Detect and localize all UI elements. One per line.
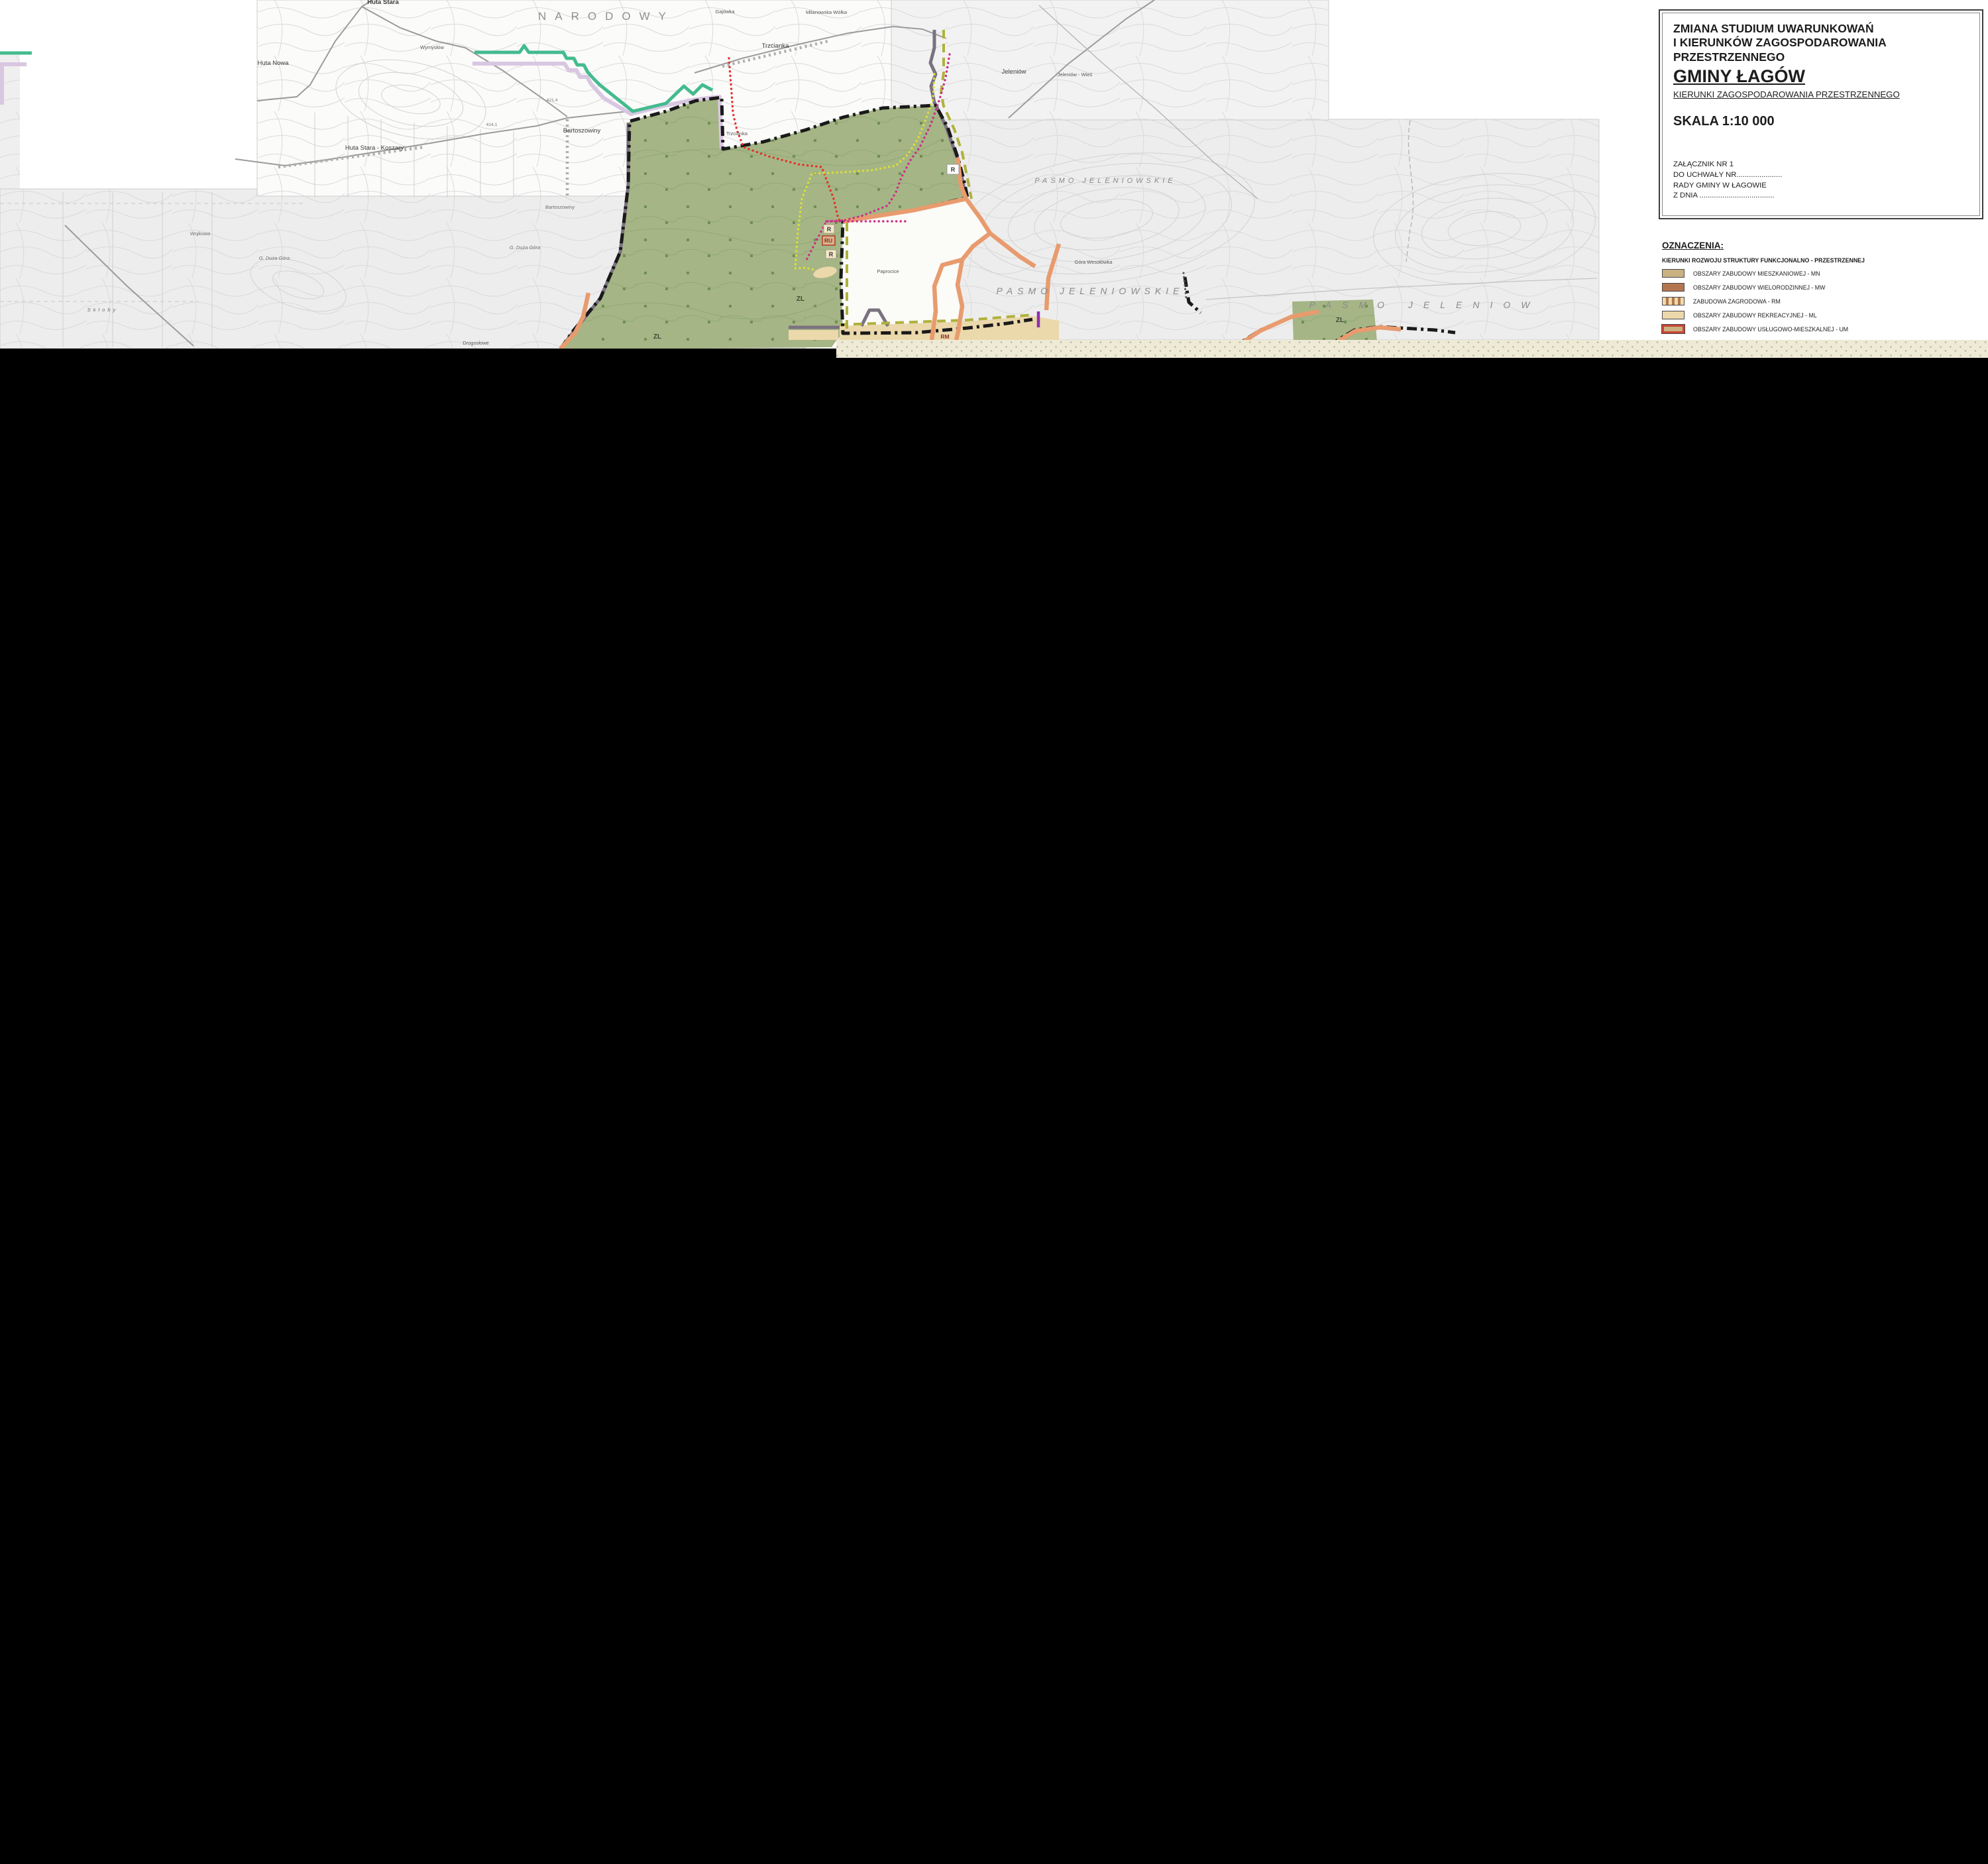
swatch-ml-icon [1662, 311, 1684, 319]
label-r-1: R [827, 226, 832, 233]
label-skloby: Skłoby [87, 307, 119, 313]
legend-label-ml: OBSZARY ZABUDOWY REKREACYJNEJ - ML [1693, 312, 1817, 319]
legend-row-rm: ZABUDOWA ZAGRODOWA - RM [1662, 294, 1981, 308]
label-pasmo-2: PASMO JELENIOWSKIE [997, 286, 1184, 296]
title-gmina-name: GMINY ŁAGÓW [1673, 66, 1805, 87]
legend: OZNACZENIA: KIERUNKI ROZWOJU STRUKTURY F… [1662, 240, 1981, 336]
legend-label-um: OBSZARY ZABUDOWY USŁUGOWO-MIESZKALNEJ - … [1693, 326, 1848, 333]
title-block: ZMIANA STUDIUM UWARUNKOWAŃ I KIERUNKÓW Z… [1659, 9, 1983, 219]
label-park-narodowy: NARODOWY [538, 10, 675, 23]
legend-row-mn: OBSZARY ZABUDOWY MIESZKANIOWEJ - MN [1662, 266, 1981, 280]
label-bartoszowiny-2: Bartoszowiny [545, 204, 576, 210]
label-huta-nowa: Huta Nowa [258, 60, 290, 67]
label-gora-wesolowka: Góra Wesołówka [1075, 259, 1113, 265]
label-huta-stara: Huta Stara [367, 0, 399, 6]
label-duza-gora-1: G. Duża Góra [259, 255, 290, 261]
label-elev-414: 414,1 [486, 123, 497, 127]
label-zl-1: ZL [797, 296, 804, 303]
swatch-um-icon [1662, 325, 1684, 333]
title-scale: SKALA 1:10 000 [1673, 114, 1969, 129]
swatch-mw-icon [1662, 283, 1684, 292]
label-pasmo-3: PASMO JELENIOW [1309, 300, 1541, 310]
dotted-strip [836, 340, 1988, 358]
attachment-line-1: ZAŁĄCZNIK NR 1 [1673, 160, 1969, 170]
label-pasmo-1: PASMO JELENIOWSKIE [1034, 177, 1176, 185]
legend-heading: OZNACZENIA: [1662, 241, 1724, 250]
title-line-2: I KIERUNKÓW ZAGOSPODAROWANIA [1673, 36, 1969, 50]
label-jeleniow: Jeleniów [1002, 68, 1026, 76]
title-line-1: ZMIANA STUDIUM UWARUNKOWAŃ [1673, 22, 1969, 36]
legend-row-um: OBSZARY ZABUDOWY USŁUGOWO-MIESZKALNEJ - … [1662, 322, 1981, 336]
label-wymyslow: Wymysłów [420, 44, 444, 50]
legend-row-ml: OBSZARY ZABUDOWY REKREACYJNEJ - ML [1662, 308, 1981, 322]
attachment-line-4: Z DNIA .................................… [1673, 191, 1969, 201]
attachment-line-2: DO UCHWAŁY NR...................... [1673, 170, 1969, 181]
label-gajowka: Gajówka [715, 9, 735, 15]
label-trzcianka: Trzcianka [762, 42, 790, 50]
title-attachment: ZAŁĄCZNIK NR 1 DO UCHWAŁY NR............… [1673, 160, 1969, 201]
label-trzcianka-2: Trzcianka [726, 131, 748, 137]
black-edge-left [0, 349, 836, 358]
label-rm: RM [940, 333, 949, 340]
legend-subheading: KIERUNKI ROZWOJU STRUKTURY FUNKCJONALNO … [1662, 257, 1981, 264]
label-bartoszowiny: Bartoszowiny [563, 127, 601, 135]
legend-row-mw: OBSZARY ZABUDOWY WIELORODZINNEJ - MW [1662, 280, 1981, 294]
label-elev-421: 421,4 [546, 98, 557, 103]
label-zl-2: ZL [653, 333, 661, 341]
label-milanowska-wolka: Milanowska Wólka [806, 9, 848, 15]
legend-label-rm: ZABUDOWA ZAGRODOWA - RM [1693, 298, 1781, 305]
label-duza-gora-2: G. Duża Góra [510, 245, 540, 250]
label-r-2: R [829, 251, 834, 258]
legend-label-mn: OBSZARY ZABUDOWY MIESZKANIOWEJ - MN [1693, 270, 1820, 277]
swatch-rm-icon [1662, 297, 1684, 305]
label-jeleniow-wies: Jeleniów - Wieś [1058, 72, 1093, 78]
label-ru: RU [824, 237, 832, 244]
attachment-line-3: RADY GMINY W ŁAGOWIE [1673, 181, 1969, 192]
title-line-3: PRZESTRZENNEGO [1673, 50, 1969, 64]
swatch-mn-icon [1662, 269, 1684, 278]
label-huta-stara-koszary: Huta Stara - Koszary [345, 144, 404, 152]
label-drogoslowe: Drogosłowe [463, 340, 489, 346]
tile-northeast [891, 0, 1329, 120]
label-wojkowa: Wojkowa [190, 231, 210, 237]
map-sheet: NARODOWY PASMO JELENIOWSKIE PASMO JELENI… [0, 0, 1988, 358]
title-block-inner: ZMIANA STUDIUM UWARUNKOWAŃ I KIERUNKÓW Z… [1662, 13, 1980, 216]
title-subtitle: KIERUNKI ZAGOSPODAROWANIA PRZESTRZENNEGO [1673, 89, 1969, 99]
label-paprocice: Paprocice [877, 268, 899, 274]
label-zl-3: ZL [1336, 317, 1344, 324]
legend-label-mw: OBSZARY ZABUDOWY WIELORODZINNEJ - MW [1693, 284, 1825, 291]
label-r-box: R [951, 166, 956, 173]
